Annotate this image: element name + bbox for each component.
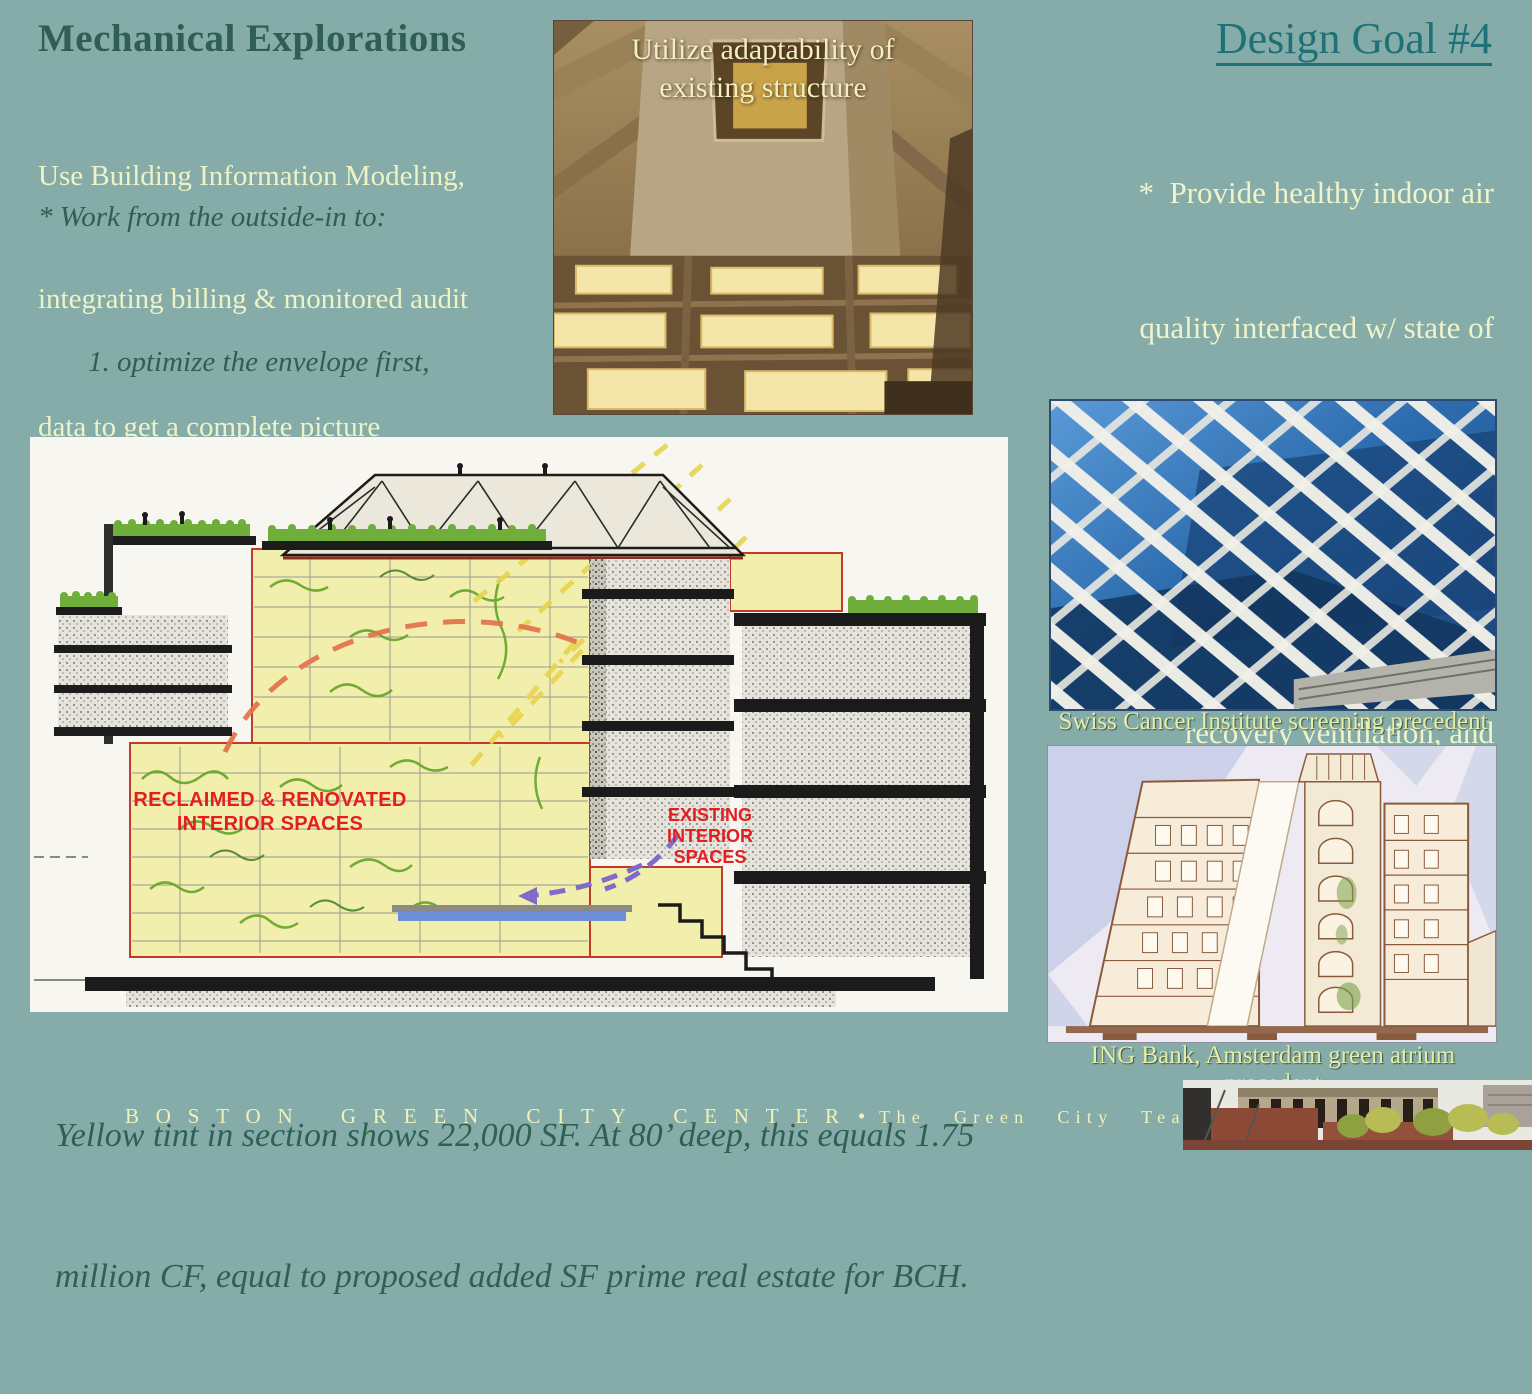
intro-line: Use Building Information Modeling, <box>38 156 468 197</box>
city-hall-photo <box>1183 1080 1532 1150</box>
building-section-drawing: RECLAIMED & RENOVATED INTERIOR SPACES EX… <box>30 437 1008 1012</box>
design-goal-title: Design Goal #4 <box>1216 16 1492 66</box>
page-title: Mechanical Explorations <box>38 16 467 61</box>
reclaimed-spaces-label: RECLAIMED & RENOVATED INTERIOR SPACES <box>130 789 410 836</box>
slide: Mechanical Explorations Use Building Inf… <box>0 0 1532 1150</box>
footer-project-name: BOSTON GREEN CITY CENTER <box>125 1104 856 1128</box>
swiss-photo-caption: Swiss Cancer Institute screening precede… <box>1040 708 1506 736</box>
section-note: Yellow tint in section shows 22,000 SF. … <box>55 1018 1020 1394</box>
atrium-section-illustration <box>1048 746 1496 1042</box>
list-item: 1. optimize the envelope first, <box>88 339 465 385</box>
footer-bullet: • <box>858 1104 865 1128</box>
design-goal-title-wrap: Design Goal #4 <box>1020 16 1492 66</box>
section-note-line: million CF, equal to proposed added SF p… <box>55 1253 1020 1300</box>
structure-photo-caption: Utilize adaptability of existing structu… <box>554 31 972 107</box>
city-plaza-illustration <box>1183 1080 1532 1150</box>
footer-team-name: The Green City Team <box>879 1107 1206 1127</box>
existing-spaces-label: EXISTING INTERIOR SPACES <box>646 805 774 869</box>
building-section-illustration <box>30 437 1008 1012</box>
goal-body-line: quality interfaced w/ state of <box>1010 305 1494 350</box>
structure-photo: Utilize adaptability of existing structu… <box>553 20 973 415</box>
footer: BOSTON GREEN CITY CENTER•The Green City … <box>125 1104 1206 1129</box>
ing-bank-drawing <box>1047 745 1497 1043</box>
goal-body-line: * Provide healthy indoor air <box>1010 170 1494 215</box>
swiss-screening-photo <box>1049 399 1497 711</box>
diagrid-facade-illustration <box>1051 401 1495 709</box>
work-note: * Work from the outside-in to: <box>38 201 386 234</box>
